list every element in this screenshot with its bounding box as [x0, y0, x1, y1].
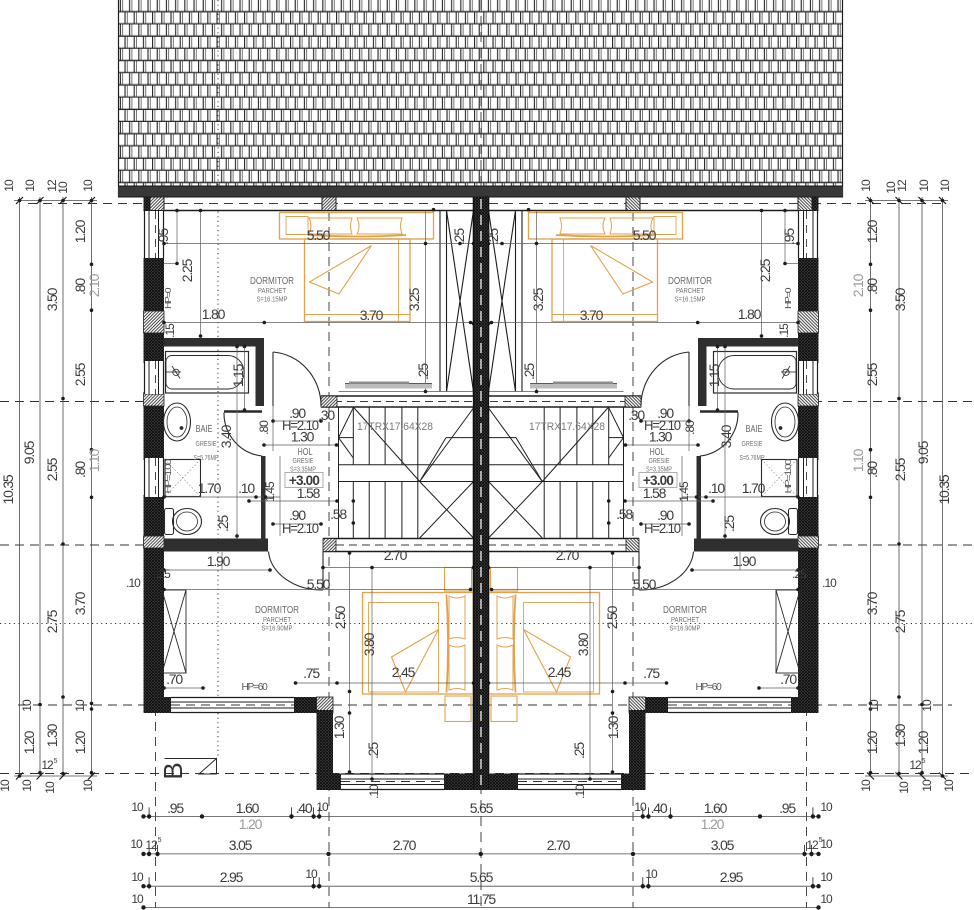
svg-text:.80: .80 [257, 420, 271, 435]
svg-text:5.65: 5.65 [470, 869, 494, 885]
svg-text:.40: .40 [296, 800, 313, 816]
svg-text:HP=60: HP=60 [242, 682, 269, 693]
svg-text:.80: .80 [864, 278, 880, 295]
svg-text:5.50: 5.50 [307, 576, 331, 592]
svg-text:HP=1.00: HP=1.00 [784, 458, 793, 493]
svg-text:2.75: 2.75 [44, 609, 60, 633]
svg-text:10.35: 10.35 [0, 474, 16, 504]
svg-text:10: 10 [131, 892, 144, 906]
svg-text:.25: .25 [792, 567, 807, 581]
svg-text:1.20: 1.20 [72, 730, 88, 754]
svg-text:11.75: 11.75 [467, 891, 496, 907]
svg-text:3.50: 3.50 [892, 287, 908, 311]
svg-text:2.75: 2.75 [892, 609, 908, 633]
svg-text:.25: .25 [571, 742, 587, 759]
svg-text:10: 10 [634, 800, 647, 814]
svg-text:17TRX17.64X28: 17TRX17.64X28 [529, 421, 605, 433]
svg-text:.75: .75 [303, 665, 320, 681]
svg-text:1.20: 1.20 [864, 219, 880, 243]
svg-text:S=16.15MP: S=16.15MP [675, 295, 706, 304]
svg-text:10: 10 [820, 892, 833, 906]
svg-text:H=2.10: H=2.10 [282, 520, 319, 536]
svg-text:2.70: 2.70 [393, 837, 417, 853]
svg-text:2.10: 2.10 [86, 273, 102, 297]
svg-text:.95: .95 [779, 800, 796, 816]
svg-text:1.30: 1.30 [605, 715, 621, 739]
svg-text:10: 10 [131, 870, 144, 884]
svg-text:10.35: 10.35 [936, 474, 952, 504]
svg-text:10: 10 [316, 800, 329, 814]
svg-text:2.55: 2.55 [892, 457, 908, 481]
svg-text:1.70: 1.70 [742, 480, 766, 496]
svg-text:9.05: 9.05 [915, 440, 931, 464]
svg-text:10: 10 [820, 870, 833, 884]
svg-text:B: B [158, 762, 188, 779]
svg-text:10: 10 [131, 800, 144, 814]
svg-text:HP=60: HP=60 [696, 682, 723, 693]
svg-text:1.15: 1.15 [230, 363, 246, 387]
svg-text:HP=0: HP=0 [164, 287, 173, 309]
svg-text:.10: .10 [126, 576, 141, 590]
svg-text:.70: .70 [166, 671, 183, 687]
svg-text:10: 10 [20, 779, 34, 792]
svg-text:5.50: 5.50 [307, 227, 331, 243]
svg-text:.25: .25 [415, 363, 431, 380]
svg-text:1.60: 1.60 [236, 800, 260, 816]
svg-text:12: 12 [909, 758, 922, 772]
svg-text:.95: .95 [781, 228, 797, 245]
svg-text:1.30: 1.30 [44, 723, 60, 747]
svg-text:H=2.10: H=2.10 [644, 520, 681, 536]
svg-text:BAIE: BAIE [196, 424, 213, 435]
svg-text:HP=0: HP=0 [784, 287, 793, 309]
svg-text:3.70: 3.70 [580, 307, 604, 323]
svg-text:3.50: 3.50 [44, 287, 60, 311]
svg-text:2.25: 2.25 [757, 258, 773, 282]
svg-text:1.20: 1.20 [864, 730, 880, 754]
svg-text:5.65: 5.65 [470, 800, 494, 816]
svg-text:10: 10 [2, 179, 16, 192]
svg-text:2.70: 2.70 [556, 547, 580, 563]
svg-text:10: 10 [81, 779, 95, 792]
svg-text:1.20: 1.20 [915, 730, 931, 754]
svg-text:3.80: 3.80 [361, 632, 377, 656]
svg-text:1.10: 1.10 [86, 448, 102, 472]
svg-text:1.15: 1.15 [706, 363, 722, 387]
svg-text:1.10: 1.10 [850, 448, 866, 472]
svg-text:S=16.15MP: S=16.15MP [257, 295, 288, 304]
svg-text:1.70: 1.70 [198, 480, 222, 496]
svg-text:10: 10 [859, 779, 873, 792]
svg-text:HP=1.00: HP=1.00 [164, 458, 173, 493]
svg-text:5.50: 5.50 [633, 576, 657, 592]
svg-text:10: 10 [938, 179, 952, 192]
svg-text:.30: .30 [628, 407, 645, 423]
svg-text:.15: .15 [777, 323, 791, 338]
svg-text:.10: .10 [708, 480, 725, 496]
svg-text:.25: .25 [521, 363, 537, 380]
svg-text:2.45: 2.45 [392, 664, 416, 680]
svg-text:10: 10 [645, 867, 658, 881]
svg-text:3.05: 3.05 [229, 837, 253, 853]
svg-text:1.30: 1.30 [649, 429, 673, 445]
svg-text:10: 10 [897, 781, 911, 794]
svg-text:10: 10 [917, 179, 931, 192]
svg-text:S=16.90MP: S=16.90MP [670, 624, 701, 633]
svg-text:12: 12 [806, 838, 819, 852]
svg-text:2.25: 2.25 [179, 258, 195, 282]
svg-text:1.20: 1.20 [21, 730, 37, 754]
svg-text:10: 10 [56, 181, 70, 194]
svg-text:.25: .25 [156, 567, 171, 581]
svg-text:3.05: 3.05 [711, 837, 735, 853]
svg-text:1.30: 1.30 [291, 429, 315, 445]
svg-text:3.70: 3.70 [360, 307, 384, 323]
svg-text:.10: .10 [367, 784, 381, 799]
svg-text:1.60: 1.60 [704, 800, 728, 816]
svg-text:.58: .58 [330, 506, 347, 522]
svg-text:17TRX17.64X28: 17TRX17.64X28 [357, 421, 433, 433]
svg-text:10: 10 [81, 179, 95, 192]
svg-text:.40: .40 [651, 800, 668, 816]
svg-text:GRESIE: GRESIE [742, 439, 763, 448]
svg-text:3.40: 3.40 [718, 424, 734, 448]
svg-text:2.70: 2.70 [384, 547, 408, 563]
svg-text:10: 10 [73, 699, 87, 712]
svg-text:.10: .10 [573, 784, 587, 799]
svg-text:2.55: 2.55 [44, 457, 60, 481]
svg-text:10: 10 [820, 837, 833, 851]
svg-text:2.95: 2.95 [720, 869, 744, 885]
svg-text:9.05: 9.05 [21, 440, 37, 464]
svg-text:.95: .95 [167, 800, 184, 816]
svg-text:10: 10 [23, 179, 37, 192]
svg-text:10: 10 [820, 800, 833, 814]
svg-text:.95: .95 [155, 228, 171, 245]
svg-text:10: 10 [20, 699, 34, 712]
svg-text:2.50: 2.50 [604, 605, 620, 629]
svg-text:12: 12 [41, 758, 54, 772]
svg-text:S=5.76MP: S=5.76MP [194, 453, 219, 462]
svg-text:.58: .58 [616, 506, 633, 522]
svg-text:3.70: 3.70 [72, 591, 88, 615]
svg-text:10: 10 [884, 181, 898, 194]
svg-text:2.55: 2.55 [864, 362, 880, 386]
svg-text:12: 12 [145, 838, 158, 852]
svg-text:2.50: 2.50 [332, 605, 348, 629]
svg-text:2.55: 2.55 [72, 362, 88, 386]
svg-text:10: 10 [859, 179, 873, 192]
svg-text:10: 10 [43, 781, 57, 794]
svg-text:1.90: 1.90 [733, 553, 757, 569]
svg-text:.25: .25 [721, 515, 737, 532]
svg-text:.80: .80 [864, 461, 880, 478]
svg-text:10: 10 [920, 699, 934, 712]
svg-text:1.45: 1.45 [263, 481, 277, 502]
svg-text:1.20: 1.20 [239, 816, 263, 832]
svg-text:10: 10 [0, 779, 12, 792]
svg-text:3.25: 3.25 [530, 287, 546, 311]
svg-text:GRESIE: GRESIE [196, 439, 217, 448]
svg-text:.75: .75 [643, 665, 660, 681]
svg-text:.10: .10 [238, 480, 255, 496]
svg-text:2.10: 2.10 [850, 273, 866, 297]
svg-text:10: 10 [305, 867, 318, 881]
svg-text:3.70: 3.70 [864, 591, 880, 615]
svg-text:2.70: 2.70 [547, 837, 571, 853]
svg-text:1.80: 1.80 [202, 306, 226, 322]
svg-text:.80: .80 [683, 420, 697, 435]
svg-text:.30: .30 [318, 407, 335, 423]
svg-text:1.20: 1.20 [72, 219, 88, 243]
svg-text:2.95: 2.95 [220, 869, 244, 885]
svg-text:.15: .15 [163, 323, 177, 338]
svg-text:S=5.76MP: S=5.76MP [740, 453, 765, 462]
svg-text:10: 10 [942, 779, 956, 792]
svg-text:.25: .25 [215, 515, 231, 532]
svg-text:.25: .25 [365, 742, 381, 759]
svg-text:3.80: 3.80 [575, 632, 591, 656]
svg-text:1.30: 1.30 [331, 715, 347, 739]
svg-text:3.40: 3.40 [218, 424, 234, 448]
svg-text:1.20: 1.20 [701, 816, 725, 832]
svg-text:1.45: 1.45 [677, 481, 691, 502]
svg-text:.10: .10 [822, 576, 837, 590]
svg-text:2.45: 2.45 [548, 664, 572, 680]
svg-text:10: 10 [130, 837, 143, 851]
svg-text:10: 10 [867, 699, 881, 712]
svg-text:1.58: 1.58 [643, 485, 667, 501]
svg-text:BAIE: BAIE [746, 424, 763, 435]
svg-text:1.58: 1.58 [297, 485, 321, 501]
svg-text:1.30: 1.30 [892, 723, 908, 747]
svg-text:1.90: 1.90 [207, 553, 231, 569]
svg-text:S=16.90MP: S=16.90MP [262, 624, 293, 633]
svg-text:5.50: 5.50 [633, 227, 657, 243]
svg-text:.70: .70 [780, 671, 797, 687]
svg-text:3.25: 3.25 [406, 287, 422, 311]
svg-text:1.80: 1.80 [738, 306, 762, 322]
svg-text:10: 10 [920, 779, 934, 792]
svg-text:.25: .25 [485, 228, 501, 245]
svg-text:.25: .25 [451, 228, 467, 245]
